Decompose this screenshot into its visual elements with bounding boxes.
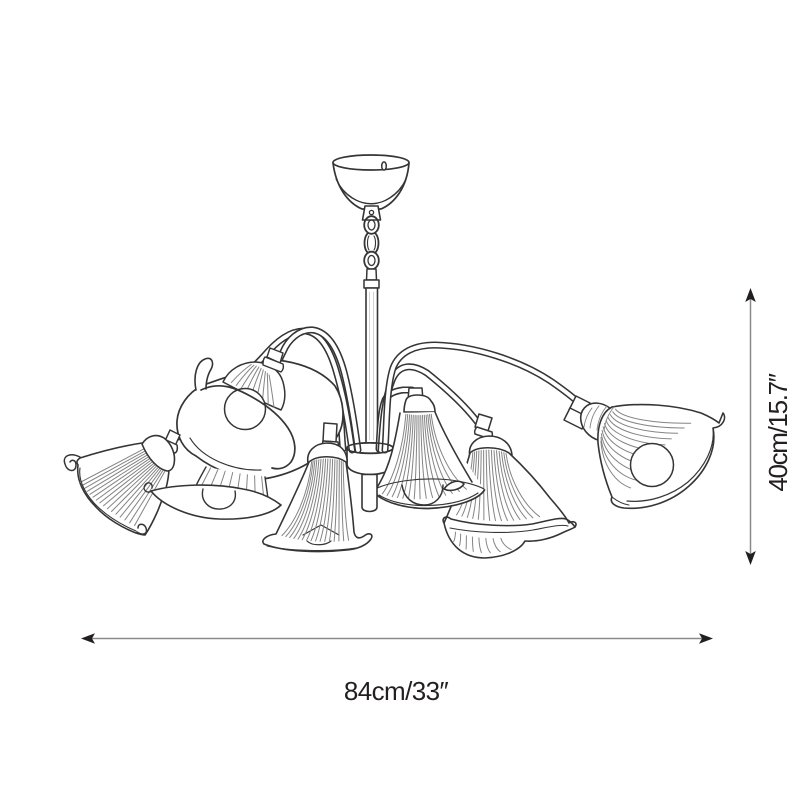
svg-text:84cm/33″: 84cm/33″	[344, 676, 449, 706]
svg-text:40cm/15.7″: 40cm/15.7″	[763, 373, 793, 491]
